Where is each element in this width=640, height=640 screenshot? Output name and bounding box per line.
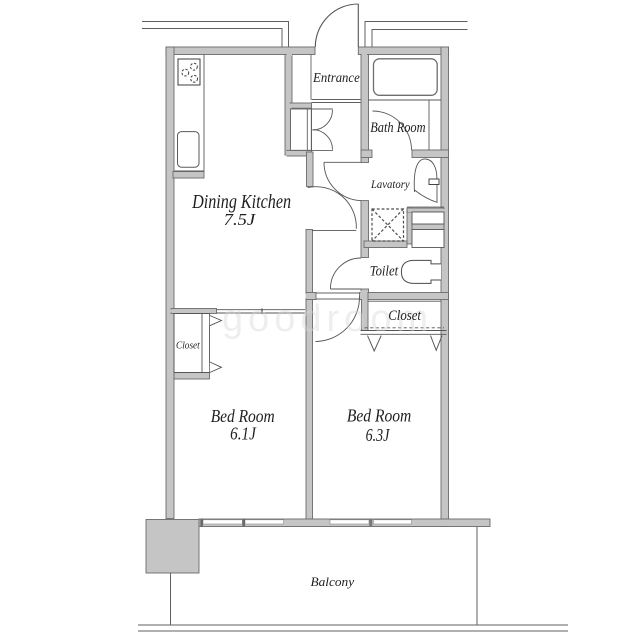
svg-text:Lavatory: Lavatory	[370, 177, 410, 191]
svg-text:Toilet: Toilet	[370, 263, 399, 279]
svg-text:Balcony: Balcony	[311, 574, 355, 589]
svg-text:6.1J: 6.1J	[230, 424, 257, 444]
svg-text:6.3J: 6.3J	[366, 425, 391, 445]
svg-text:Bath Room: Bath Room	[370, 120, 425, 136]
svg-text:7.5J: 7.5J	[224, 210, 257, 229]
svg-text:Closet: Closet	[388, 308, 422, 324]
svg-text:Closet: Closet	[176, 340, 200, 351]
svg-text:Bed Room: Bed Room	[347, 405, 411, 425]
svg-text:Entrance: Entrance	[312, 71, 360, 86]
